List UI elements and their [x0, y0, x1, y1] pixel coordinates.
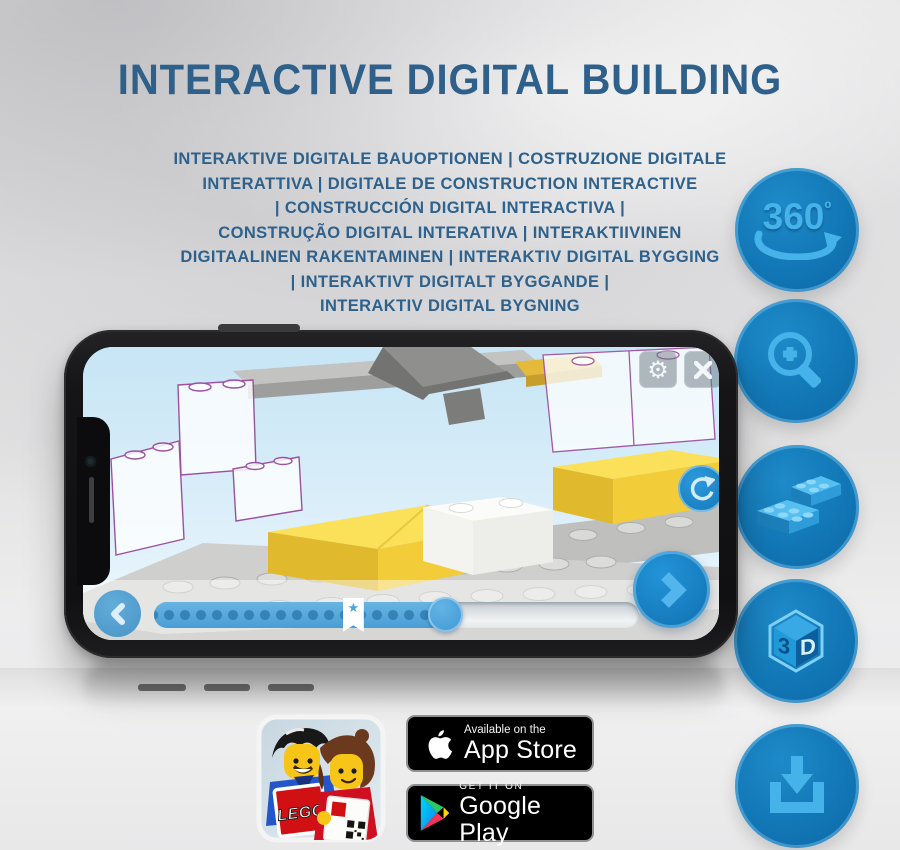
cube-3-label: 3: [778, 633, 790, 660]
chevron-right-icon: [655, 571, 689, 609]
download-icon: [760, 749, 834, 823]
lego-app-icon[interactable]: LEGO: [256, 714, 386, 843]
app-store-name: App Store: [464, 737, 577, 764]
multilingual-subtitle: INTERAKTIVE DIGITALE BAUOPTIONEN | COSTR…: [125, 147, 775, 319]
progress-fill: [154, 602, 445, 628]
rotation-degree: º: [824, 200, 831, 220]
phone-side-button: [218, 324, 300, 332]
subtitle-line: INTERATTIVA | DIGITALE DE CONSTRUCTION I…: [202, 175, 697, 193]
next-step-button[interactable]: [633, 551, 710, 628]
reflection-detail: [268, 684, 314, 691]
subtitle-line: INTERAKTIVE DIGITALE BAUOPTIONEN | COSTR…: [173, 150, 726, 168]
lego-model-scene: [83, 347, 719, 640]
speaker-slit: [89, 477, 94, 523]
page-title: INTERACTIVE DIGITAL BUILDING: [32, 56, 869, 105]
feature-3d-view[interactable]: 3 D: [734, 579, 858, 703]
google-play-name: Google Play: [459, 793, 582, 847]
app-store-badge[interactable]: Available on the App Store: [406, 715, 594, 772]
app-store-tagline: Available on the: [464, 724, 577, 737]
build-progress-bar[interactable]: ★: [154, 602, 639, 628]
google-play-badge[interactable]: GET IT ON Google Play: [406, 784, 594, 842]
apple-icon: [420, 724, 454, 764]
cube-d-label: D: [800, 633, 816, 660]
phone-notch: [77, 417, 110, 585]
rotate-model-button[interactable]: [678, 465, 719, 512]
zoom-in-icon: [757, 322, 835, 400]
feature-bricks[interactable]: [735, 445, 859, 569]
reflection-detail: [138, 684, 186, 691]
app-screen: ⚙: [83, 347, 719, 640]
subtitle-line: INTERAKTIV DIGITAL BYGNING: [320, 297, 580, 315]
promo-poster: INTERACTIVE DIGITAL BUILDING INTERAKTIVE…: [0, 0, 900, 850]
camera-icon: [86, 457, 95, 466]
subtitle-line: | INTERAKTIVT DIGITALT BYGGANDE |: [291, 273, 610, 291]
google-play-triangle-icon: [420, 794, 449, 832]
gear-icon: ⚙: [647, 358, 669, 382]
previous-step-button[interactable]: [94, 590, 141, 637]
feature-download[interactable]: [735, 724, 859, 848]
subtitle-line: CONSTRUÇÃO DIGITAL INTERATIVA | INTERAKT…: [218, 224, 681, 242]
google-play-tagline: GET IT ON: [459, 780, 582, 793]
close-button[interactable]: [684, 351, 719, 388]
step-slider-handle[interactable]: [428, 597, 463, 632]
reflection-detail: [204, 684, 250, 691]
chevron-left-icon: [108, 602, 128, 626]
phone-mockup: ⚙: [64, 330, 738, 658]
rotate-arrow-icon: [688, 475, 715, 502]
close-icon: [694, 361, 712, 379]
bricks-icon: [751, 464, 843, 550]
settings-button[interactable]: ⚙: [639, 351, 677, 388]
subtitle-line: DIGITAALINEN RAKENTAMINEN | INTERAKTIV D…: [180, 248, 719, 266]
3d-cube-icon: 3 D: [754, 599, 838, 683]
subtitle-line: | CONSTRUCCIÓN DIGITAL INTERACTIVA |: [275, 199, 625, 217]
